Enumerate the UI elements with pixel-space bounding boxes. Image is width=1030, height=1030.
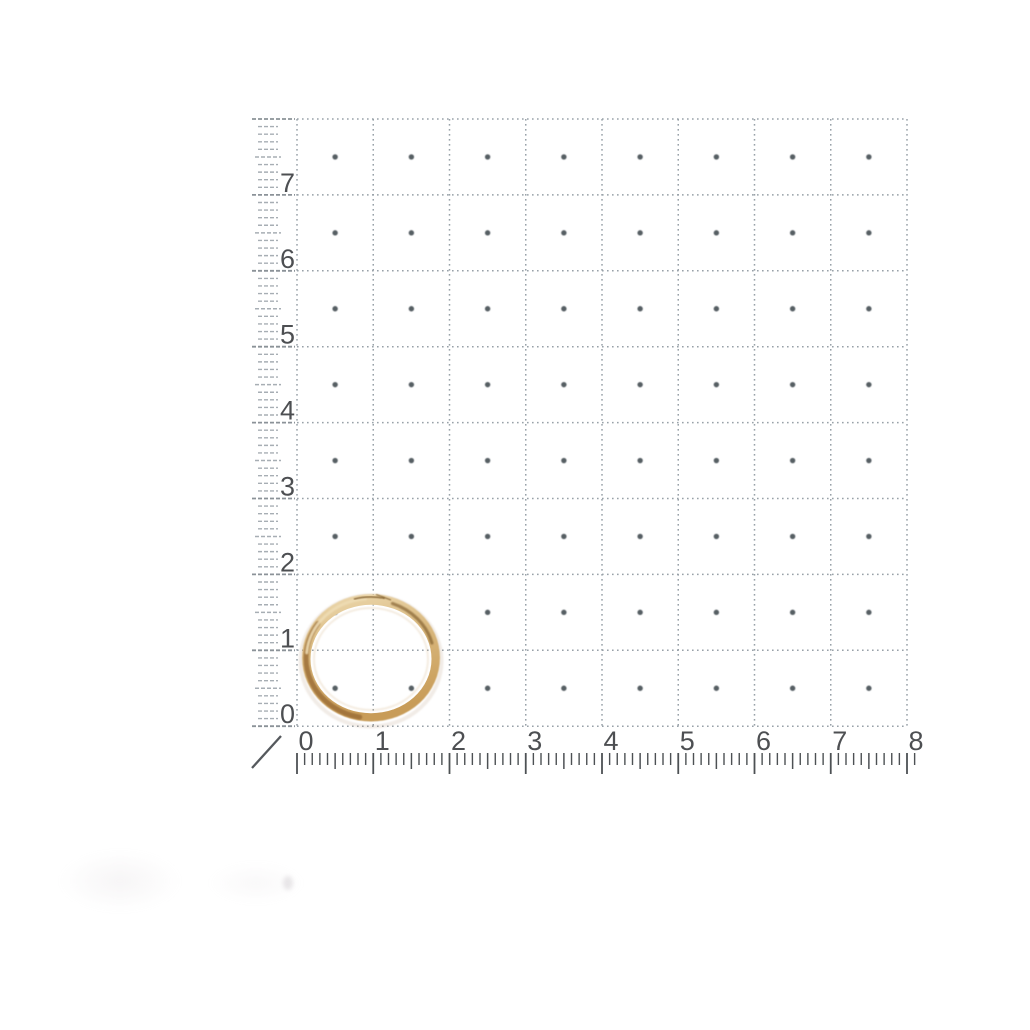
grid-center-dot [790, 306, 795, 311]
grid-center-dot [714, 154, 719, 159]
grid-center-dot [485, 534, 490, 539]
grid-center-dot [790, 230, 795, 235]
grid-center-dot [714, 382, 719, 387]
grid-center-dot [637, 458, 642, 463]
grid-center-dot [409, 306, 414, 311]
grid-center-dot [866, 458, 871, 463]
ring-band [302, 594, 440, 721]
bottom-ruler-number: 7 [832, 726, 847, 756]
bottom-ruler-number: 3 [527, 726, 542, 756]
grid-center-dot [561, 382, 566, 387]
grid-center-dot [561, 534, 566, 539]
grid-center-dot [561, 458, 566, 463]
grid-center-dot [790, 686, 795, 691]
grid-center-dot [332, 230, 337, 235]
grid-center-dot [637, 230, 642, 235]
paper-background [0, 0, 1030, 1030]
grid-center-dot [561, 686, 566, 691]
grid-center-dot [485, 306, 490, 311]
bottom-ruler-number: 6 [756, 726, 771, 756]
grid-center-dot [866, 306, 871, 311]
grid-center-dot [637, 306, 642, 311]
left-ruler-number: 3 [280, 472, 295, 502]
grid-center-dot [714, 458, 719, 463]
grid-center-dot [790, 382, 795, 387]
product-photo: 76543210012345678 [0, 0, 1030, 1030]
grid-center-dot [332, 382, 337, 387]
grid-center-dot [409, 382, 414, 387]
grid-center-dot [866, 230, 871, 235]
grid-center-dot [332, 306, 337, 311]
grid-center-dot [714, 686, 719, 691]
left-ruler-number: 6 [280, 244, 295, 274]
grid-center-dot [332, 458, 337, 463]
grid-center-dot [485, 382, 490, 387]
grid-center-dot [790, 534, 795, 539]
grid-center-dot [637, 154, 642, 159]
grid-center-dot [485, 610, 490, 615]
grid-center-dot [790, 154, 795, 159]
measurement-grid-photo: 76543210012345678 [0, 0, 1030, 1030]
grid-center-dot [409, 534, 414, 539]
grid-center-dot [561, 306, 566, 311]
grid-center-dot [409, 154, 414, 159]
left-ruler-number: 4 [280, 396, 295, 426]
bottom-ruler-number: 4 [603, 726, 618, 756]
bottom-ruler-number: 2 [451, 726, 466, 756]
grid-center-dot [637, 382, 642, 387]
left-ruler-number: 1 [280, 623, 295, 653]
grid-center-dot [866, 382, 871, 387]
grid-center-dot [409, 230, 414, 235]
grid-center-dot [790, 458, 795, 463]
bottom-ruler-number: 5 [680, 726, 695, 756]
grid-center-dot [714, 534, 719, 539]
grid-center-dot [332, 154, 337, 159]
bottom-ruler-number: 8 [908, 726, 923, 756]
grid-center-dot [485, 686, 490, 691]
grid-center-dot [561, 154, 566, 159]
grid-center-dot [714, 230, 719, 235]
left-ruler-number: 2 [280, 547, 295, 577]
grid-center-dot [637, 686, 642, 691]
grid-center-dot [714, 610, 719, 615]
grid-center-dot [485, 154, 490, 159]
grid-center-dot [866, 534, 871, 539]
left-ruler-number: 0 [280, 699, 295, 729]
grid-center-dot [332, 534, 337, 539]
bottom-ruler-number: 1 [375, 726, 390, 756]
grid-center-dot [637, 534, 642, 539]
grid-center-dot [485, 458, 490, 463]
grid-center-dot [866, 154, 871, 159]
grid-center-dot [714, 306, 719, 311]
grid-center-dot [561, 610, 566, 615]
bottom-ruler-number: 0 [298, 726, 313, 756]
grid-center-dot [637, 610, 642, 615]
grid-center-dot [409, 458, 414, 463]
grid-center-dot [790, 610, 795, 615]
grid-center-dot [866, 610, 871, 615]
left-ruler-number: 5 [280, 320, 295, 350]
grid-center-dot [561, 230, 566, 235]
left-ruler-number: 7 [280, 168, 295, 198]
gold-hoop-ring [301, 594, 442, 726]
grid-center-dot [485, 230, 490, 235]
grid-center-dot [866, 686, 871, 691]
